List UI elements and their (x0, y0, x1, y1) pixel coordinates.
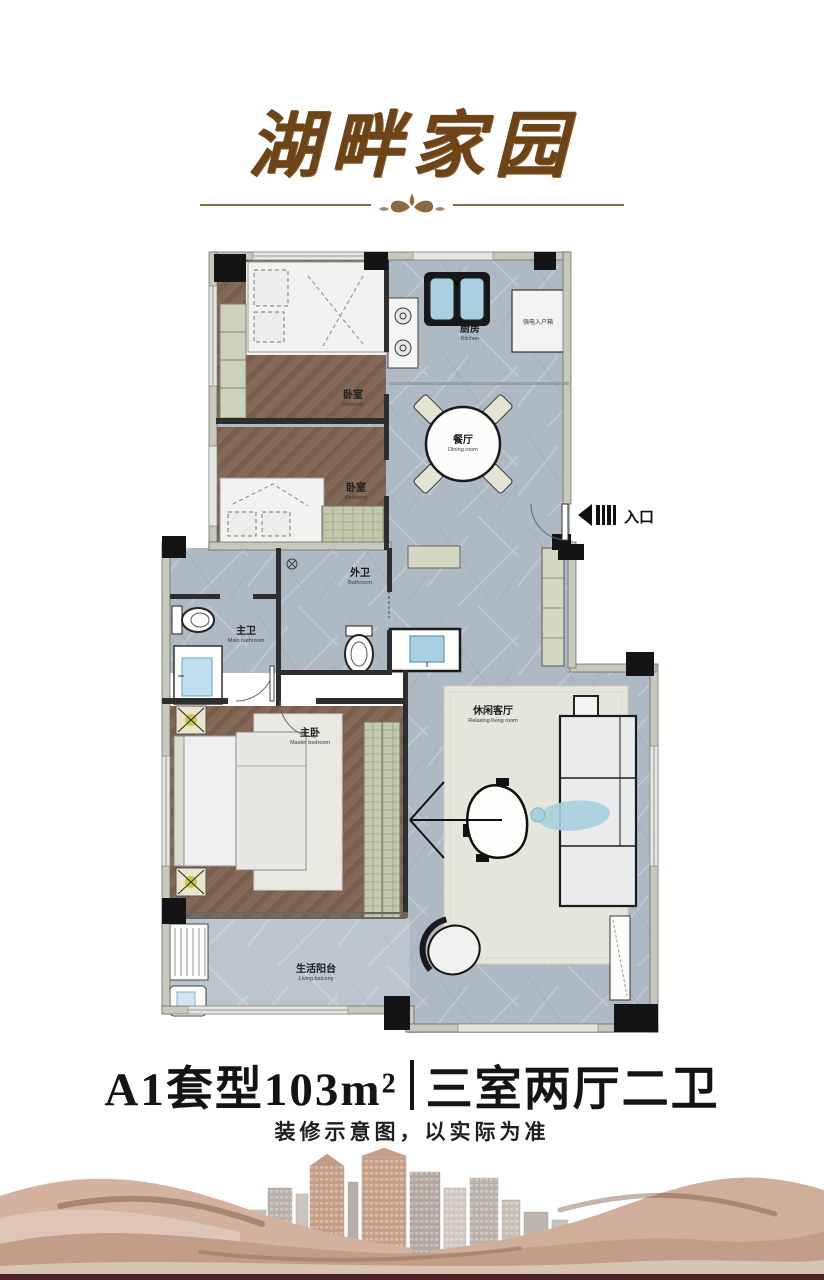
page-title: 湖畔家园 (0, 86, 824, 191)
unit-model: A1套型103m² (104, 1050, 397, 1119)
kitchen-sink (424, 272, 490, 326)
living-room-label-en: Relaxing living room (468, 718, 518, 724)
floor-plan-drawing: 强电入户箱 (158, 246, 666, 1038)
dining-label-en: Dining room (448, 447, 478, 453)
bottom-strip (0, 1274, 824, 1280)
fleur-ornament-icon (377, 191, 447, 219)
master-bed (174, 732, 306, 870)
living-room-label-zh: 休闲客厅 (472, 704, 513, 717)
bedroom2-bed (220, 478, 324, 544)
master-bedroom-label-en: Master bedroom (290, 740, 330, 746)
kitchen-counter-edge (389, 382, 569, 385)
kitchen-label-en: Kitchen (461, 336, 479, 342)
bedroom1-label-zh: 卧室 (343, 388, 363, 401)
divider-line-right (453, 204, 624, 206)
master-bedroom-label-zh: 主卧 (300, 726, 320, 739)
balcony-label-zh: 生活阳台 (296, 962, 336, 975)
electric-entry-box: 强电入户箱 (512, 290, 564, 352)
bedroom1-wardrobe (220, 304, 246, 418)
divider-line-left (200, 204, 371, 206)
tv-niche (390, 629, 460, 671)
washing-machine (170, 924, 208, 980)
unit-info-separator (410, 1060, 414, 1110)
guest-bath-label-en: Bathroom (348, 580, 372, 586)
kitchen-stove (388, 298, 418, 368)
entry-shoe-cabinet (542, 548, 564, 666)
hallway-cabinet (408, 546, 460, 568)
bedroom1-bed (248, 262, 386, 352)
floor-plan: 强电入户箱 (158, 246, 666, 1038)
poster-page: 湖畔家园 (0, 0, 824, 1280)
guest-bath-label-zh: 外卫 (349, 566, 370, 579)
master-bathroom-door-leaf (270, 666, 274, 701)
dining-label-zh: 餐厅 (452, 433, 473, 446)
footer-skyline-dunes-art (0, 1148, 824, 1280)
master-bathroom-shower (174, 646, 222, 704)
nightstand-lamp-top (176, 706, 206, 734)
bedroom2-wardrobe (322, 506, 384, 546)
master-bath-label-en: Main bathroom (228, 638, 265, 644)
entrance-door-leaf (562, 504, 568, 540)
disclaimer-text: 装修示意图，以实际为准 (0, 1116, 824, 1146)
unit-info: A1套型103m² 三室两厅二卫 (0, 1050, 824, 1119)
bedroom2-label-en: Bedroom (345, 495, 368, 501)
guest-bathroom-toilet (345, 626, 373, 673)
ornament-divider (200, 190, 624, 220)
bedroom1-label-en: Bedroom (342, 402, 365, 408)
entrance-marker: 入口 (578, 504, 654, 526)
kitchen-label-zh: 厨房 (460, 322, 480, 335)
nightstand-lamp-bottom (176, 868, 206, 896)
balcony-label-en: Living balcony (299, 976, 334, 982)
unit-layout: 三室两厅二卫 (426, 1050, 720, 1119)
entrance-label: 入口 (624, 509, 654, 526)
master-wardrobe (364, 722, 400, 918)
living-window-panel (610, 916, 630, 1000)
master-bath-label-zh: 主卫 (236, 624, 256, 637)
svg-text:强电入户箱: 强电入户箱 (523, 318, 553, 326)
bedroom2-label-zh: 卧室 (346, 481, 366, 494)
master-bathroom-toilet (172, 606, 214, 634)
